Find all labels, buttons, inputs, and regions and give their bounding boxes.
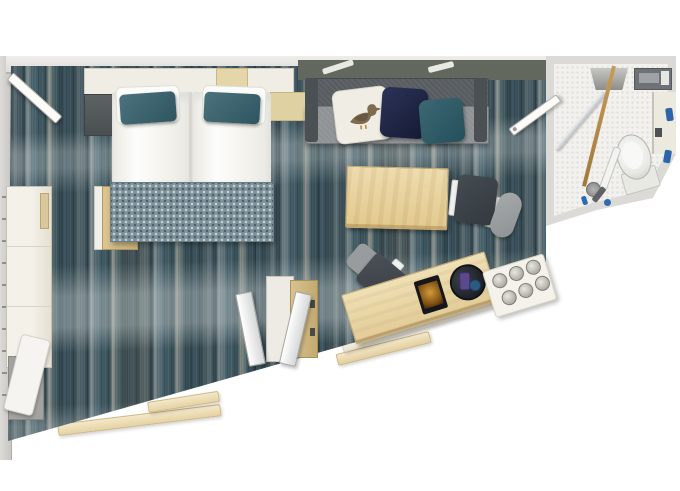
glass <box>490 271 509 290</box>
door-knob <box>512 126 518 132</box>
cabinet-shelf <box>661 71 669 85</box>
shower-handset-tip <box>604 199 611 206</box>
glass <box>533 274 552 293</box>
glass <box>524 258 543 277</box>
accent-pillow-left <box>119 91 177 125</box>
seagull-print-icon <box>341 97 383 133</box>
cushion-teal <box>418 97 466 145</box>
wardrobe-knob <box>310 328 315 336</box>
bathroom-accessory <box>655 128 662 137</box>
minibar-tray <box>445 260 490 305</box>
bottle <box>468 278 483 293</box>
bathroom-cabinet <box>634 68 672 90</box>
accent-pillow-right <box>203 92 260 125</box>
floorplan-canvas <box>0 0 680 491</box>
tablet-menu <box>413 275 448 315</box>
tablet-screen <box>418 280 444 309</box>
sofa-arm-right <box>474 78 487 142</box>
glass <box>516 281 535 300</box>
mattress-gap <box>189 92 192 184</box>
glass <box>500 288 519 307</box>
coffee-table <box>345 166 449 231</box>
bed-runner-blanket <box>110 182 274 242</box>
sofa-arm-left <box>305 78 318 142</box>
shelf-line <box>7 306 51 307</box>
shelf-line <box>7 246 51 247</box>
wardrobe-handle <box>40 193 49 229</box>
glass <box>507 264 526 283</box>
wardrobe-knob <box>310 300 315 308</box>
cabinet-inner <box>639 73 659 83</box>
double-bed <box>112 88 270 240</box>
bathroom-counter <box>652 92 676 154</box>
